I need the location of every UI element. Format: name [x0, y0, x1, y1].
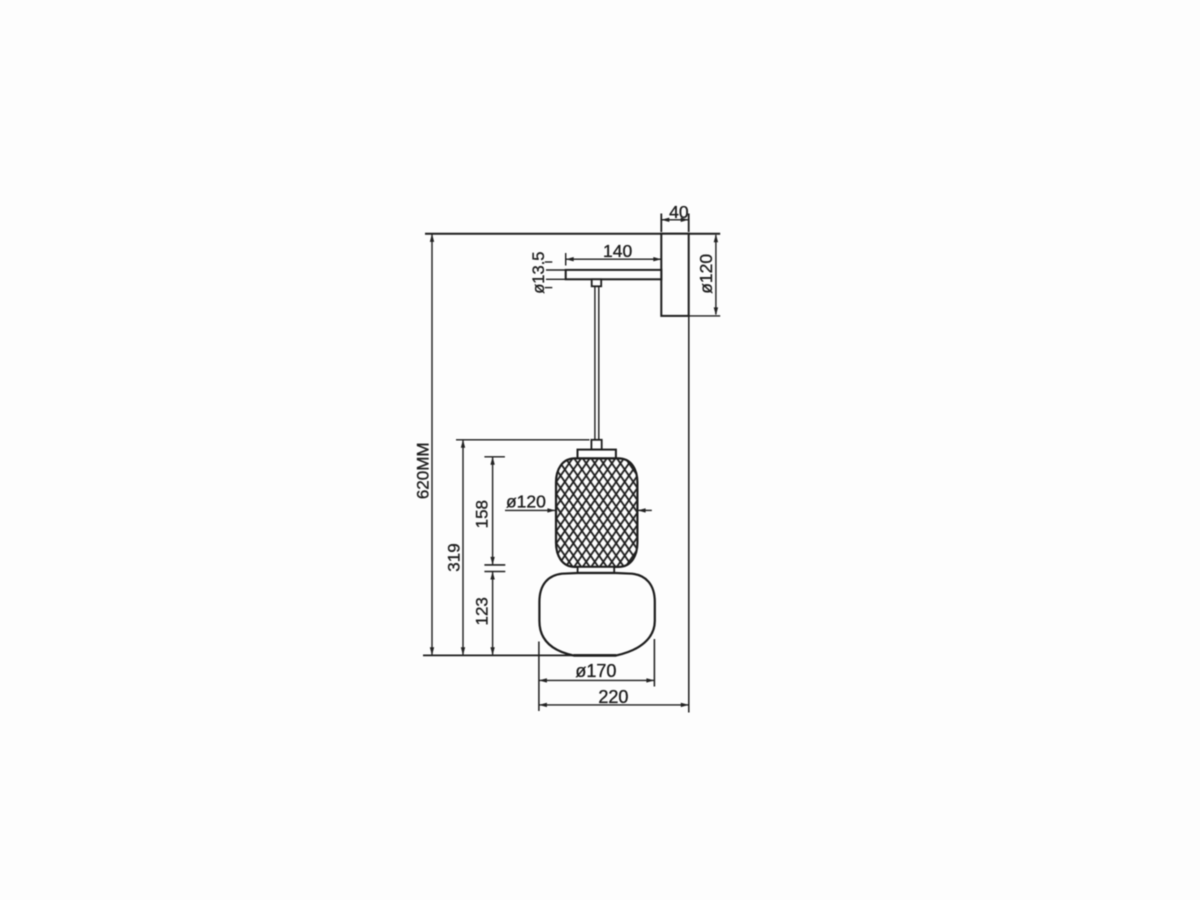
svg-text:220: 220: [598, 687, 628, 707]
svg-text:620MM: 620MM: [414, 442, 433, 499]
svg-text:158: 158: [473, 500, 492, 528]
svg-text:ø13.5: ø13.5: [530, 252, 548, 294]
svg-text:319: 319: [445, 543, 464, 571]
svg-text:140: 140: [603, 241, 632, 261]
svg-text:ø120: ø120: [696, 254, 716, 294]
svg-text:123: 123: [473, 597, 492, 625]
svg-text:ø170: ø170: [575, 661, 616, 681]
svg-text:40: 40: [669, 202, 689, 222]
svg-text:ø120: ø120: [506, 492, 546, 512]
